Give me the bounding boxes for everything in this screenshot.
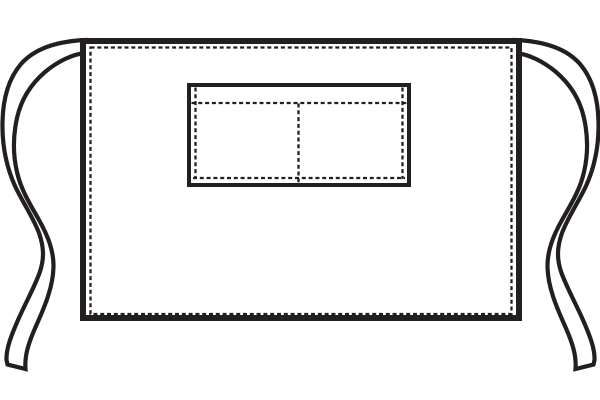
left-waist-tie-ribbon — [2, 40, 86, 369]
right-waist-tie-ribbon — [515, 40, 599, 369]
right-waist-tie — [515, 40, 599, 369]
pocket-outline — [189, 85, 409, 185]
front-pocket — [189, 85, 409, 186]
apron-illustration — [0, 0, 600, 400]
apron-line-drawing — [0, 0, 600, 400]
